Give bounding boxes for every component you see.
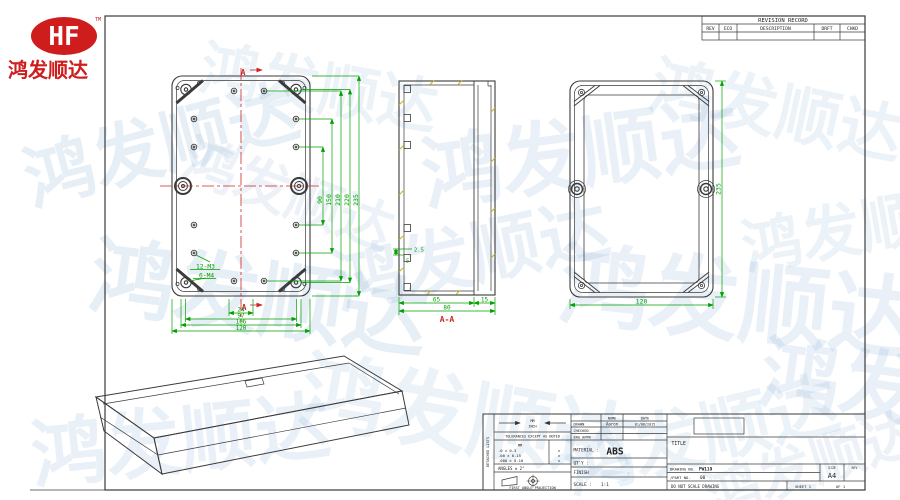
title-block: DETACHED LISTS MM INCH TOLERANCES EXCEPT… — [483, 414, 865, 490]
iso-front-face — [154, 391, 409, 474]
cad-drawing: HF TM 鸿发顺达 REVISION RECORD REV ECO DESCR… — [0, 0, 900, 500]
sheet-text: SHEET 1 — [795, 484, 812, 489]
thread-label-m3: 12-M3 — [196, 264, 215, 271]
size-label: SIZE — [828, 466, 836, 470]
drawing-no-value: PW119 — [699, 466, 713, 472]
iso-top-face — [96, 356, 402, 438]
frame-border — [105, 16, 865, 490]
units-mm: MM — [530, 419, 534, 423]
dim-label-210: 210 — [334, 194, 342, 206]
corner-brace — [279, 81, 306, 104]
iso-lid-split — [158, 408, 406, 455]
corner-brace — [177, 81, 204, 104]
drawn-label: DRAWN — [574, 423, 585, 427]
tolerance-row: .000 ± 0.10 — [498, 458, 524, 463]
back-outer-wall — [570, 81, 713, 297]
description-col-header: DESCRIPTION — [760, 26, 791, 32]
dim-label-65: 65 — [433, 297, 441, 304]
units-inch: INCH — [528, 425, 536, 429]
material-label: MATERIAL : — [574, 448, 599, 453]
back-corner-screws — [578, 89, 704, 288]
dim-label-235: 235 — [352, 194, 360, 206]
part-no-label: /PART NO. — [670, 475, 691, 480]
chkd-col-header: CHKD — [847, 26, 858, 32]
dim-label-220: 220 — [343, 194, 351, 206]
logo-tm: TM — [95, 17, 101, 23]
dim-label-150: 150 — [325, 194, 333, 206]
rev-label: REV — [852, 466, 858, 470]
eco-col-header: ECO — [724, 26, 733, 32]
drawing-sheet: 鸿发顺达鸿发顺达鸿发顺达鸿发顺达鸿发顺达鸿发顺达鸿发顺达鸿发顺达鸿发顺达鸿发顺达… — [0, 0, 900, 500]
back-mounting-ears — [569, 181, 715, 198]
name-header: NAME — [608, 417, 616, 421]
eng-appr-label: ENG APPR — [574, 436, 592, 440]
dim-label-back-120: 120 — [636, 298, 648, 306]
of-text: OF 1 — [836, 484, 846, 489]
drawn-date: 01/06/2015 — [635, 423, 655, 427]
revision-table: REVISION RECORD REV ECO DESCRIPTION DRFT… — [702, 16, 865, 40]
scale-label: SCALE : — [574, 482, 593, 488]
thread-label-m4: 6-M4 — [199, 273, 214, 280]
iso-end-face — [96, 397, 162, 474]
revision-title: REVISION RECORD — [758, 18, 808, 24]
company-name: 鸿发顺达 — [8, 58, 88, 82]
drft-col-header: DRFT — [821, 26, 832, 32]
front-dimensions: 90 150 210 220 235 24 97 106 120 12-M3 6… — [172, 76, 360, 334]
section-view-label: A-A — [440, 315, 455, 324]
dim-label-back-235: 235 — [715, 183, 723, 195]
date-header: DATE — [641, 417, 649, 421]
material-value: ABS — [606, 447, 623, 458]
tolerance-note: TOLERANCES EXCEPT AS NOTED — [505, 435, 560, 439]
section-view — [399, 81, 495, 296]
projection-cone-icon — [502, 477, 517, 487]
section-label-top: A — [241, 68, 246, 77]
dim-label-5: 5 — [406, 259, 409, 265]
drawing-no-label: DRAWING NO. — [670, 466, 695, 471]
section-dimensions: 2.5 5 65 15 80 — [393, 248, 495, 316]
side-label: DETACHED LISTS — [486, 437, 490, 467]
finish-label: FINISH — [574, 470, 590, 475]
scale-value: 1:1 — [601, 482, 609, 488]
section-outline — [399, 81, 495, 295]
tol-header: MM — [518, 444, 523, 448]
corner-brace — [279, 269, 306, 292]
logo: HF TM 鸿发顺达 — [8, 17, 101, 82]
tol-inch-mark: ± — [558, 458, 561, 463]
sheet-frame — [30, 16, 865, 490]
checked-label: CHECKED — [574, 429, 589, 433]
title-block-logo-box — [694, 418, 744, 434]
hatch-ticks — [399, 81, 495, 295]
qty-label: QT'Y : — [574, 461, 589, 466]
back-view — [569, 81, 715, 297]
isometric-view — [96, 356, 409, 474]
angles-note: ANGLES ± 2° — [498, 466, 525, 471]
back-dimensions: 235 120 — [570, 81, 726, 309]
dim-label-80: 80 — [443, 305, 451, 312]
logo-abbr: HF — [48, 22, 79, 52]
lid-recessed-panel — [584, 95, 699, 283]
dim-label-15: 15 — [481, 297, 489, 304]
part-no-value: 00 — [700, 475, 706, 481]
title-label: TITLE — [672, 441, 687, 447]
drawn-name: Aaron — [606, 422, 619, 427]
do-not-scale-note: DO NOT SCALE DRAWING — [671, 484, 720, 489]
iso-latch — [245, 378, 264, 387]
projection-note: FIRST ANGLE PROJECTION — [509, 486, 555, 490]
size-value: A4 — [828, 472, 836, 480]
dim-label-2p5: 2.5 — [414, 248, 424, 254]
dim-label-120: 120 — [236, 325, 247, 332]
rev-col-header: REV — [706, 26, 715, 32]
back-corner-braces — [574, 86, 709, 293]
dim-label-90: 90 — [316, 196, 324, 204]
